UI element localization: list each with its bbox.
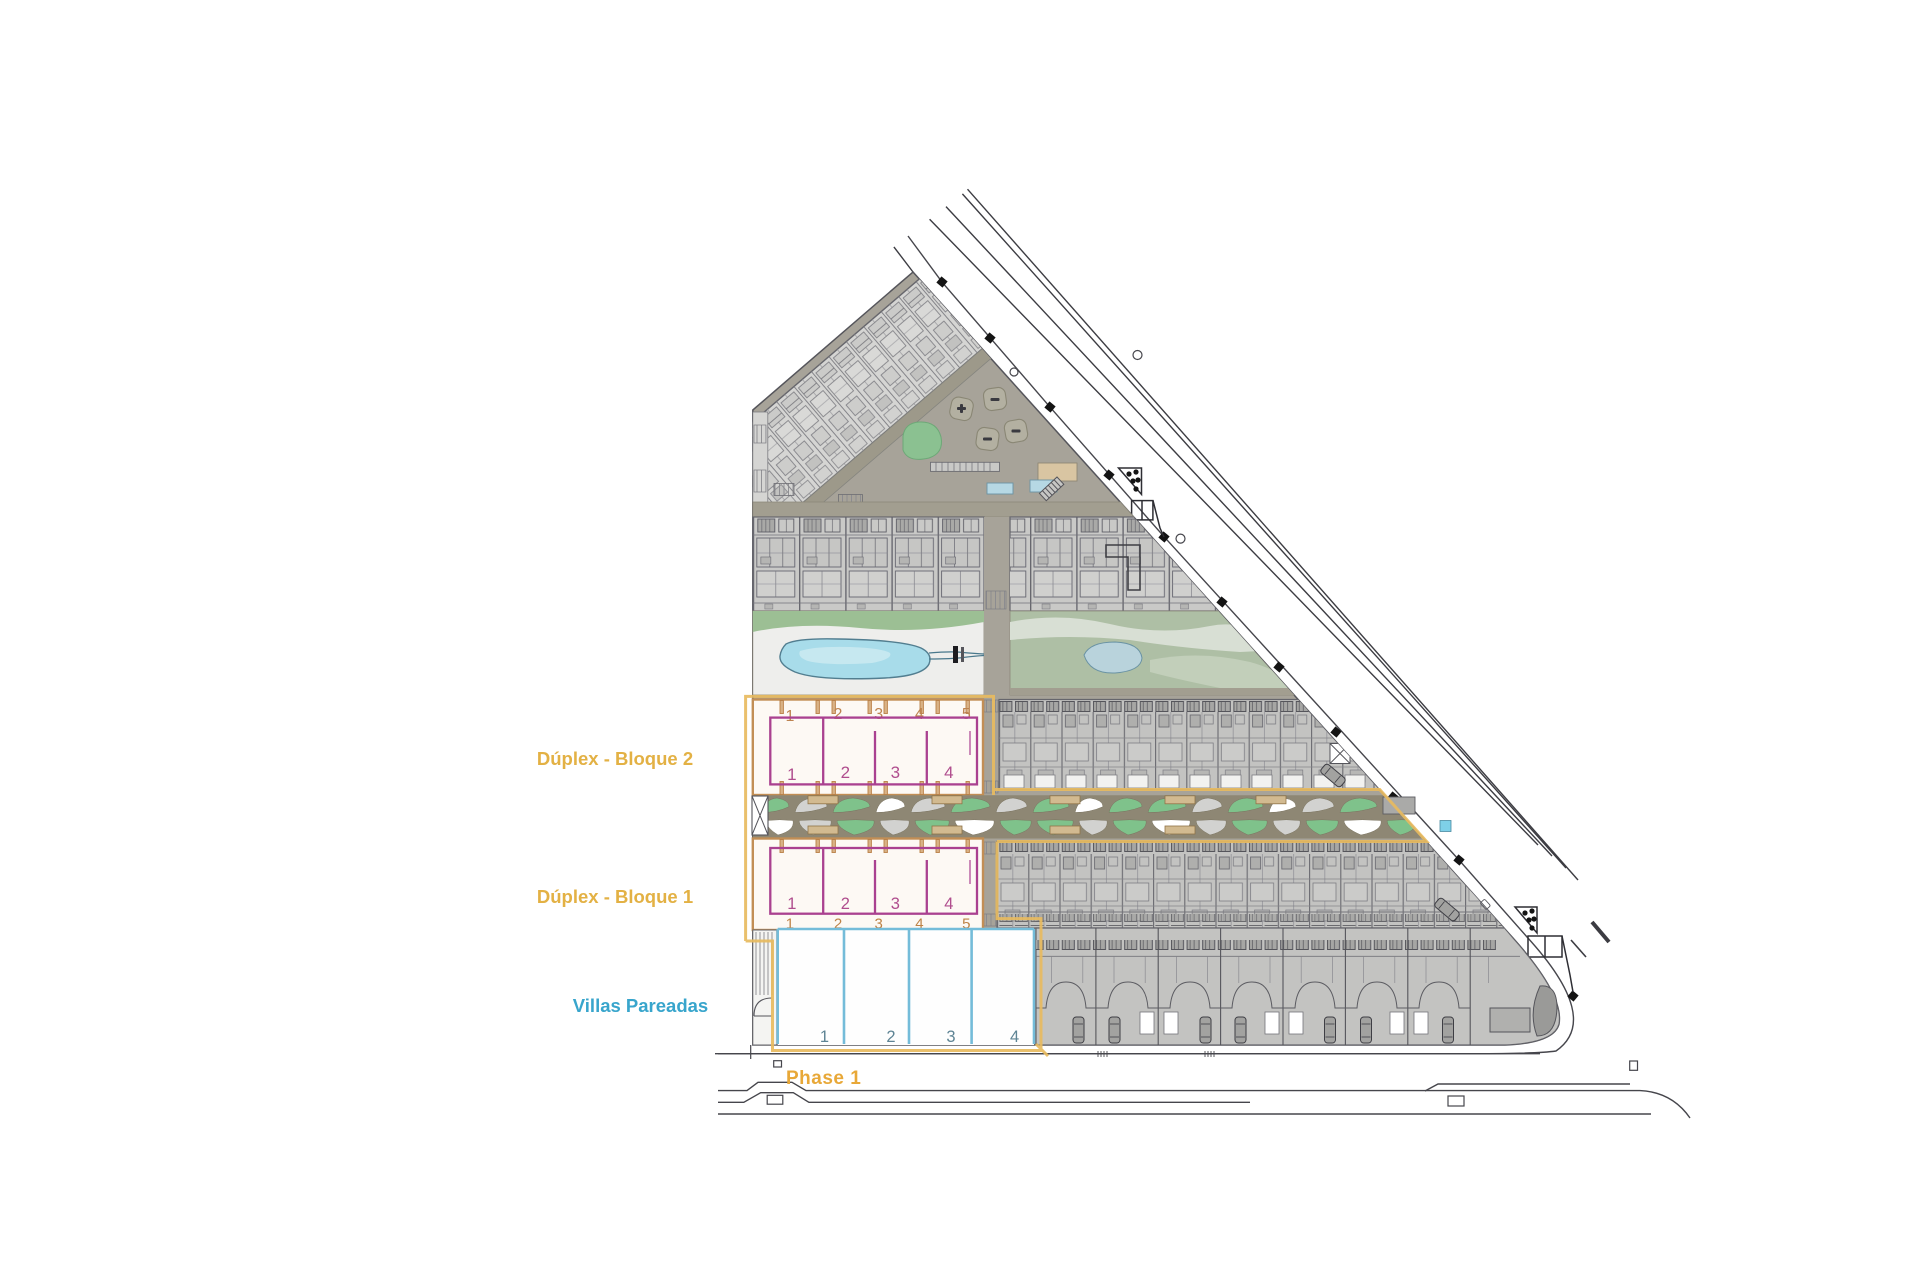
svg-text:3: 3 [891,763,900,782]
svg-text:3: 3 [946,1028,955,1046]
svg-text:4: 4 [944,763,953,782]
svg-text:2: 2 [886,1028,895,1046]
svg-text:2: 2 [834,706,843,723]
svg-text:3: 3 [874,706,883,723]
svg-text:Dúplex - Bloque 2: Dúplex - Bloque 2 [537,748,693,769]
svg-text:1: 1 [820,1028,829,1046]
svg-text:Villas Pareadas: Villas Pareadas [573,995,708,1016]
svg-text:4: 4 [944,895,953,913]
svg-text:1: 1 [787,765,796,784]
svg-text:2: 2 [841,763,850,782]
svg-text:4: 4 [915,706,924,723]
svg-text:2: 2 [841,895,850,913]
svg-text:5: 5 [962,706,971,723]
svg-text:Phase 1: Phase 1 [786,1068,861,1089]
svg-text:4: 4 [1010,1028,1019,1046]
svg-text:3: 3 [891,895,900,913]
svg-text:Dúplex - Bloque 1: Dúplex - Bloque 1 [537,886,693,907]
svg-text:1: 1 [787,895,796,913]
